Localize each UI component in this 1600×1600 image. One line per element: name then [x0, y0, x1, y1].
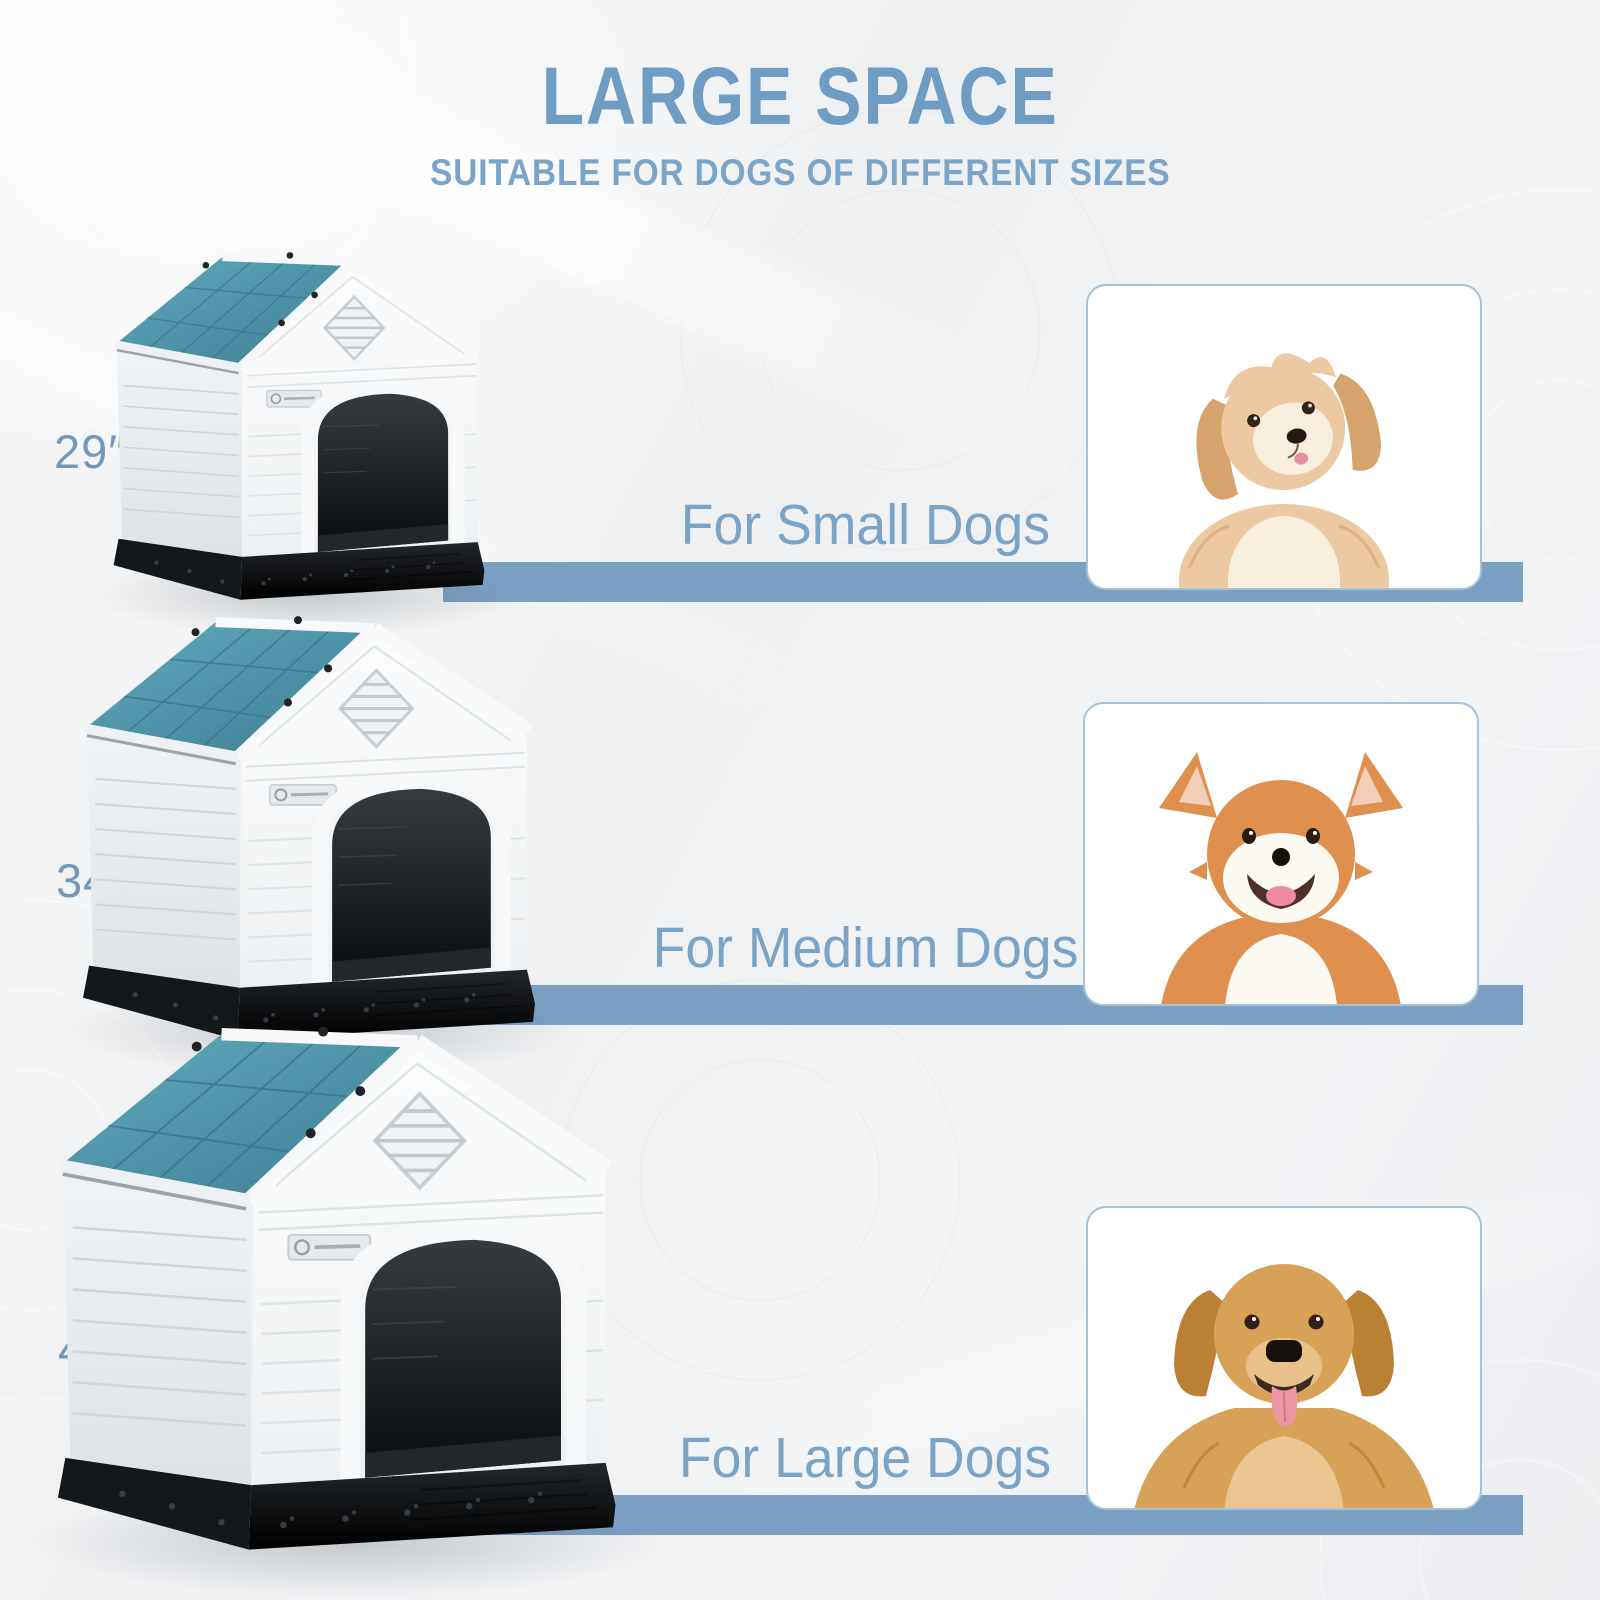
dog-photo-card-small	[1086, 284, 1482, 590]
dog-house-graphic-medium	[75, 588, 537, 1050]
golden-retriever-photo	[1114, 1238, 1454, 1510]
dog-photo-card-large	[1086, 1206, 1482, 1510]
dog-photo-card-medium	[1083, 702, 1479, 1006]
product-infographic: LARGE SPACE SUITABLE FOR DOGS OF DIFFERE…	[0, 0, 1600, 1600]
dog-house-graphic-large	[48, 992, 618, 1562]
shiba-inu-photo	[1121, 744, 1441, 1006]
page-title: LARGE SPACE	[0, 50, 1600, 144]
page-subtitle: SUITABLE FOR DOGS OF DIFFERENT SIZES	[0, 152, 1600, 194]
fluffy-tan-puppy-photo	[1134, 328, 1434, 590]
dog-house-graphic-small	[107, 229, 486, 608]
